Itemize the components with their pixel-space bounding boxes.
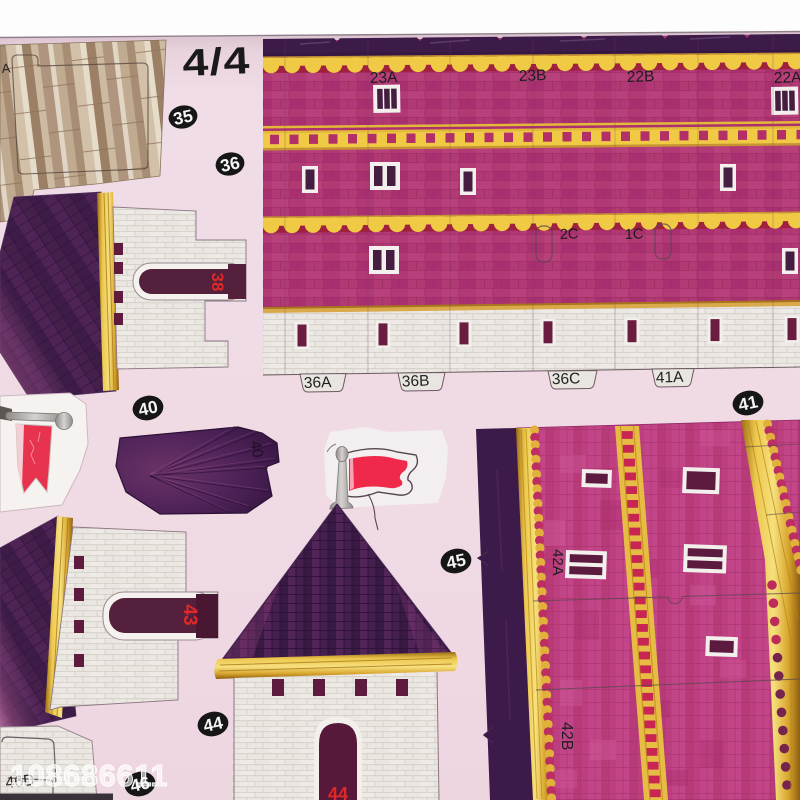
svg-text:36C: 36C (552, 370, 581, 388)
svg-text:108686611: 108686611 (10, 759, 168, 793)
svg-text:23B: 23B (519, 67, 547, 85)
svg-text:36B: 36B (402, 373, 430, 391)
svg-text:42A: 42A (549, 549, 566, 576)
svg-text:40: 40 (247, 440, 267, 459)
svg-text:22A: 22A (774, 69, 800, 87)
svg-text:23A: 23A (370, 69, 399, 87)
svg-text:44: 44 (328, 784, 348, 800)
svg-text:41A: 41A (656, 369, 685, 387)
svg-text:22B: 22B (627, 68, 655, 86)
svg-text:43: 43 (179, 604, 200, 625)
svg-text:42B: 42B (558, 722, 575, 750)
svg-text:38: 38 (208, 273, 227, 292)
svg-text:1C: 1C (625, 226, 644, 243)
svg-text:4/4: 4/4 (182, 39, 252, 84)
svg-text:2C: 2C (560, 226, 579, 243)
svg-text:A: A (1, 60, 11, 76)
svg-text:36A: 36A (304, 374, 333, 392)
